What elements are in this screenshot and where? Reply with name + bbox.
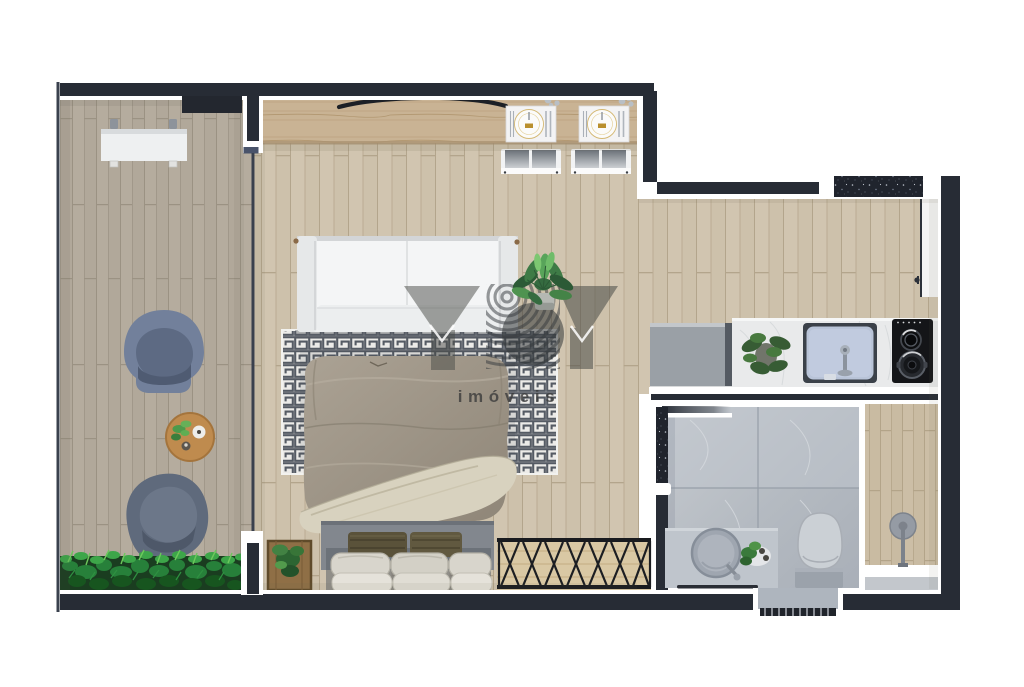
- svg-text:imóveis: imóveis: [458, 387, 561, 406]
